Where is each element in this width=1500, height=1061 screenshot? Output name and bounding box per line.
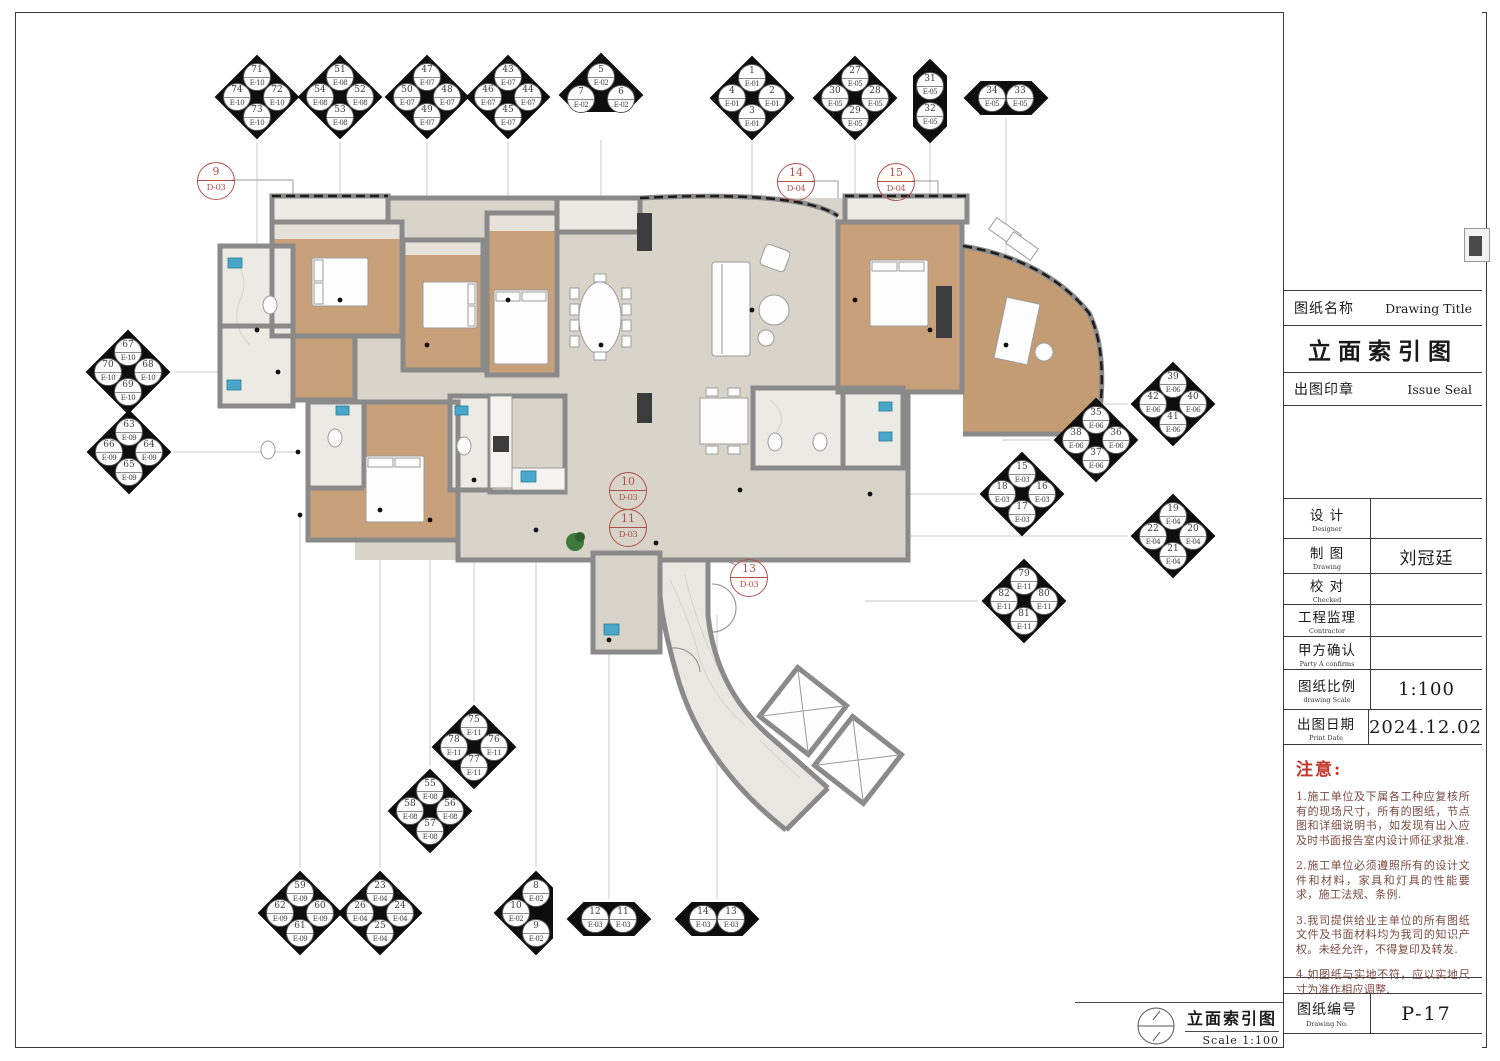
elevation-marker: 59E-0960E-0961E-0962E-09 [255,868,345,958]
elevation-ref-left: 62E-09 [266,899,294,927]
field-contractor: 工程监理Contractor [1284,604,1482,636]
note-2: 2.施工单位必须遵照所有的设计文件和材料，家具和灯具的性能要求，施工法规、条例. [1296,859,1470,903]
detail-marker: 9D-03 [197,162,235,200]
elevation-ref-left: 26E-04 [346,899,374,927]
footer-title: 立面索引图 [1185,1005,1279,1032]
field-party-a: 甲方确认Party A confirms [1284,636,1482,669]
elevation-marker: 12E-0311E-03 [564,874,654,964]
detail-marker: 15D-04 [877,163,915,201]
print-date: 2024.12.02 [1369,717,1482,738]
footer-scale: Scale 1:100 [1203,1034,1279,1047]
elevation-marker: 67E-1068E-1069E-1070E-10 [83,327,173,417]
elevation-marker: 14E-0313E-03 [672,874,762,964]
notes-title: 注意: [1296,755,1470,780]
elevation-ref-bottom: 32E-05 [916,102,944,130]
field-checked: 校 对Checked [1284,573,1482,604]
footer-drawing-label: 立面索引图 Scale 1:100 [1075,1002,1283,1048]
title-block: 图纸名称 Drawing Title 立面索引图 出图印章 Issue Seal… [1283,12,1482,1048]
elevation-ref-left: 50E-07 [393,83,421,111]
elevation-marker: 51E-0852E-0853E-0854E-08 [295,52,385,142]
elevation-marker: 19E-0420E-0421E-0422E-04 [1128,491,1218,581]
drawing-title-label-en: Drawing Title [1385,301,1472,316]
elevation-ref-left: 74E-10 [223,83,251,111]
elevation-marker: 47E-0748E-0749E-0750E-07 [382,52,472,142]
elevation-ref-left: 82E-11 [990,587,1018,615]
field-designer: 设 计Designer [1284,498,1482,538]
elevation-ref-left: 14E-03 [689,905,717,933]
elevation-ref-bottom: 9E-02 [522,919,550,947]
field-scale: 图纸比例drawing Scale 1:100 [1284,669,1482,709]
elevation-ref-left: 34E-05 [978,84,1006,112]
elevation-ref-right: 13E-03 [717,905,745,933]
elevation-marker: 5E-027E-026E-02 [556,50,646,140]
drawing-sheet: { "sheet": { "name_label": "图纸名称", "name… [0,0,1500,1061]
detail-marker: 14D-04 [777,163,815,201]
elevation-marker: 23E-0424E-0425E-0426E-04 [335,868,425,958]
elevation-ref-left: 42E-06 [1139,390,1167,418]
elevation-ref-left: 78E-11 [440,733,468,761]
note-1: 1.施工单位及下属各工种应复核所有的现场尺寸，所有的图纸，节点图和详细说明书，如… [1296,790,1470,848]
fold-mark [1464,228,1490,262]
elevation-ref-left: 22E-04 [1139,522,1167,550]
elevation-marker: 55E-0856E-0857E-0858E-08 [385,766,475,856]
detail-marker: 10D-03 [609,472,647,510]
elevation-ref-left: 58E-08 [396,797,424,825]
issue-seal-label: 出图印章 [1294,379,1354,399]
elevation-ref-left: 66E-09 [95,438,123,466]
elevation-marker: 63E-0964E-0965E-0966E-09 [84,407,174,497]
elevation-ref-top: 31E-05 [916,72,944,100]
detail-marker: 11D-03 [609,509,647,547]
drawing-title-label: 图纸名称 [1294,298,1354,318]
issue-seal-label-en: Issue Seal [1407,382,1472,397]
notes-section: 注意: 1.施工单位及下属各工种应复核所有的现场尺寸，所有的图纸，节点图和详细说… [1284,744,1482,977]
scale-value: 1:100 [1371,679,1482,700]
elevation-markers-layer: 71E-1072E-1073E-1074E-1051E-0852E-0853E-… [0,0,1500,1061]
elevation-marker: 79E-1180E-1181E-1182E-11 [979,556,1069,646]
elevation-ref-left: 70E-10 [94,358,122,386]
note-3: 3.我司提供给业主单位的所有图纸文件及书面材料均为我司的知识产权。未经允许，不得… [1296,914,1470,958]
elevation-ref-left: 54E-08 [306,83,334,111]
field-date: 出图日期Print Date 2024.12.02 [1284,709,1482,744]
elevation-ref-right: 6E-02 [607,85,635,113]
detail-reference-icon [1136,1006,1176,1046]
elevation-ref-left: 4E-01 [718,84,746,112]
elevation-marker: 43E-0744E-0745E-0746E-07 [463,52,553,142]
field-drafter: 制 图Drawing 刘冠廷 [1284,538,1482,573]
elevation-ref-right: 11E-03 [609,905,637,933]
drawing-title-row: 图纸名称 Drawing Title [1284,290,1482,325]
elevation-ref-left: 7E-02 [567,85,595,113]
elevation-marker: 15E-0316E-0317E-0318E-03 [977,449,1067,539]
elevation-ref-left: 46E-07 [474,83,502,111]
seal-box [1284,405,1482,498]
elevation-ref-left: 18E-03 [988,480,1016,508]
issue-seal-row: 出图印章 Issue Seal [1284,372,1482,405]
elevation-marker: 71E-1072E-1073E-1074E-10 [212,52,302,142]
drawing-number-row: 图纸编号Drawing No. P-17 [1284,993,1482,1034]
drawing-number: P-17 [1371,1003,1482,1025]
elevation-marker: 34E-0533E-05 [961,53,1051,143]
elevation-marker: 39E-0640E-0641E-0642E-06 [1128,359,1218,449]
elevation-ref-left: 12E-03 [581,905,609,933]
elevation-marker: 1E-012E-013E-014E-01 [707,53,797,143]
elevation-ref-right: 33E-05 [1006,84,1034,112]
sheet-title: 立面索引图 [1284,325,1482,372]
detail-marker: 13D-03 [730,559,768,597]
elevation-ref-left: 30E-05 [821,84,849,112]
drafter-name: 刘冠廷 [1371,544,1482,569]
